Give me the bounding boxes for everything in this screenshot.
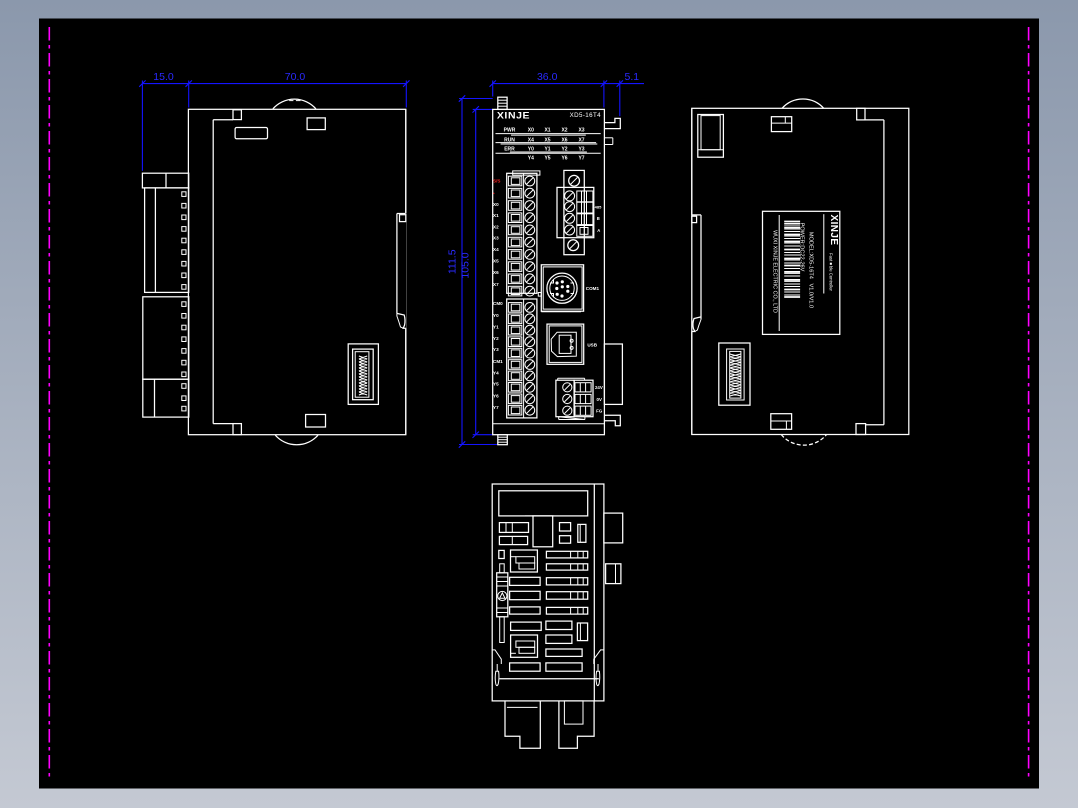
svg-text:X3: X3 bbox=[493, 236, 499, 241]
svg-text:111.5: 111.5 bbox=[446, 249, 458, 274]
svg-text:36.0: 36.0 bbox=[537, 71, 558, 83]
svg-text:USB: USB bbox=[587, 343, 597, 348]
svg-text:A: A bbox=[597, 228, 600, 233]
svg-text:Y3: Y3 bbox=[493, 347, 499, 352]
svg-text:X1: X1 bbox=[493, 213, 499, 218]
svg-text:24V: 24V bbox=[595, 385, 603, 390]
svg-text:Y6: Y6 bbox=[561, 156, 567, 162]
svg-text:5.1: 5.1 bbox=[624, 71, 639, 83]
svg-text:Fast ■ ble Controller: Fast ■ ble Controller bbox=[829, 253, 834, 292]
svg-text:COM1: COM1 bbox=[586, 286, 600, 291]
svg-text:Y7: Y7 bbox=[578, 156, 584, 162]
svg-text:FG: FG bbox=[596, 408, 603, 413]
svg-text:Y7: Y7 bbox=[493, 405, 499, 410]
svg-text:X7: X7 bbox=[493, 282, 499, 287]
svg-text:0V: 0V bbox=[597, 397, 602, 402]
svg-text:X3: X3 bbox=[578, 128, 584, 134]
svg-text:X0: X0 bbox=[493, 202, 499, 207]
svg-text:Y2: Y2 bbox=[493, 336, 499, 341]
svg-text:Y0: Y0 bbox=[493, 313, 499, 318]
svg-text:X6: X6 bbox=[493, 270, 499, 275]
svg-text:70.0: 70.0 bbox=[285, 71, 306, 83]
svg-text:X2: X2 bbox=[561, 128, 567, 134]
svg-text:Y1: Y1 bbox=[493, 324, 499, 329]
svg-text:PWR: PWR bbox=[504, 128, 516, 134]
svg-text:X5: X5 bbox=[493, 259, 499, 264]
svg-text:Y4: Y4 bbox=[528, 156, 534, 162]
svg-text:15.0: 15.0 bbox=[153, 71, 174, 83]
svg-text:POWER:DC22-26V: POWER:DC22-26V bbox=[799, 223, 805, 272]
svg-text:S/S: S/S bbox=[493, 179, 500, 184]
svg-text:Y4: Y4 bbox=[493, 371, 499, 376]
svg-text:CM1: CM1 bbox=[493, 359, 503, 364]
svg-text:485: 485 bbox=[595, 204, 602, 209]
svg-text:X0: X0 bbox=[528, 128, 534, 134]
svg-text:XINJE: XINJE bbox=[497, 111, 530, 121]
svg-text:XINJE: XINJE bbox=[828, 215, 839, 246]
svg-text:Y6: Y6 bbox=[493, 393, 499, 398]
svg-text:105.0: 105.0 bbox=[460, 252, 472, 278]
svg-text:X1: X1 bbox=[544, 128, 550, 134]
svg-text:CM0: CM0 bbox=[493, 301, 503, 306]
svg-text:B: B bbox=[597, 216, 600, 221]
svg-text:X2: X2 bbox=[493, 224, 499, 229]
svg-text:MODEL:XD5-16T4 V1.0/V1.0: MODEL:XD5-16T4 V1.0/V1.0 bbox=[808, 232, 814, 308]
svg-text:X4: X4 bbox=[493, 247, 499, 252]
svg-text:XD5-16T4: XD5-16T4 bbox=[570, 112, 602, 119]
svg-text:Y5: Y5 bbox=[493, 382, 499, 387]
svg-text:WUXI XINJE ELECTRIC CO., LTD: WUXI XINJE ELECTRIC CO., LTD bbox=[772, 230, 778, 313]
svg-text:Y5: Y5 bbox=[544, 156, 550, 162]
